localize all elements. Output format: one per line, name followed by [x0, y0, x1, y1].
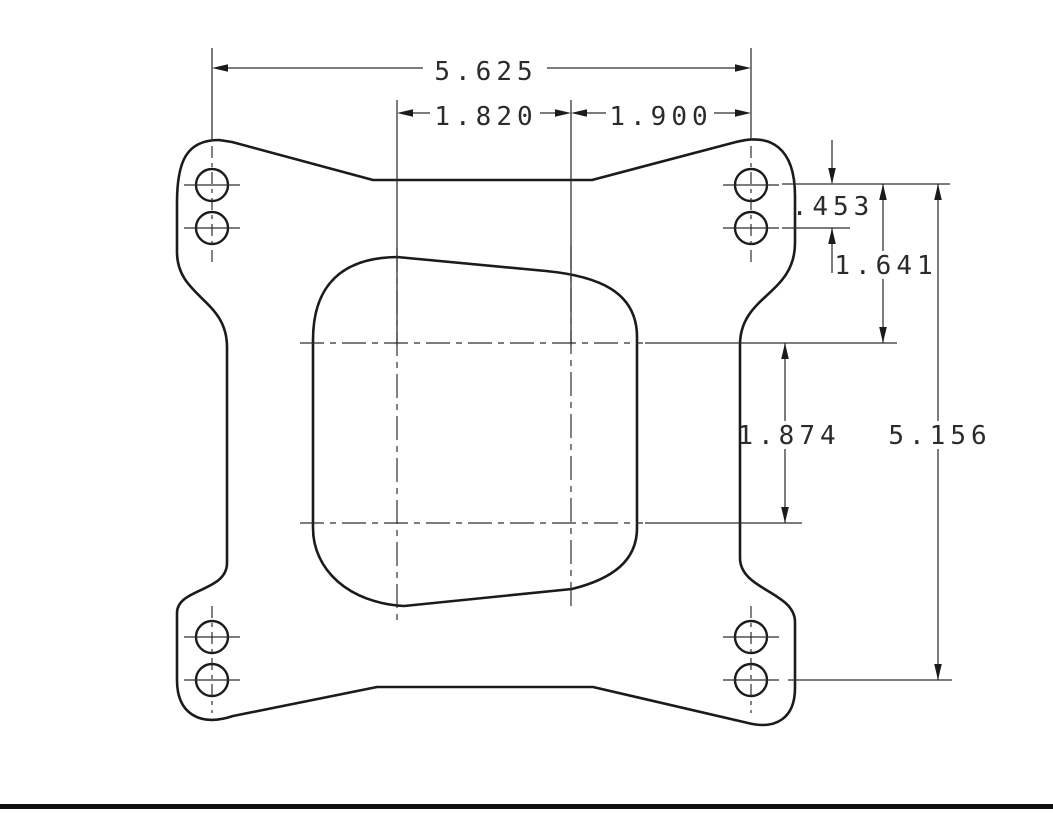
- flange-drawing-canvas: 5.625 1.820 1.900 .453 1.641 1: [0, 0, 1053, 813]
- dimension-right-bore-spacing: 1.900: [571, 102, 751, 132]
- arrowhead-left: [397, 109, 413, 117]
- dimension-value-overall-width: 5.625: [434, 57, 537, 87]
- flange-outline: [177, 139, 795, 724]
- dimension-value-top-row-to-centerline: 1.641: [834, 251, 937, 281]
- arrowhead-up: [879, 184, 887, 200]
- dimension-value-hole-offset: .453: [792, 192, 875, 222]
- dimension-overall-width: 5.625: [212, 57, 751, 87]
- dimension-left-bore-spacing: 1.820: [397, 102, 571, 132]
- arrowhead-left: [212, 64, 228, 72]
- arrowhead-right: [735, 109, 751, 117]
- arrowhead-down: [934, 664, 942, 680]
- plenum-opening-outline: [313, 257, 637, 606]
- dimension-bore-centerline-spacing: 1.874: [737, 343, 840, 523]
- arrowhead-down: [781, 507, 789, 523]
- footer-divider-bar: [0, 804, 1053, 809]
- technical-drawing-page: 5.625 1.820 1.900 .453 1.641 1: [0, 0, 1053, 813]
- arrowhead-up: [828, 228, 836, 244]
- arrowhead-up: [781, 343, 789, 359]
- dimension-value-overall-height: 5.156: [888, 421, 991, 451]
- arrowhead-down: [828, 168, 836, 184]
- bore-centerlines: [300, 246, 643, 623]
- arrowhead-left: [571, 109, 587, 117]
- mounting-holes: [196, 169, 767, 696]
- arrowhead-right: [555, 109, 571, 117]
- dimension-value-bore-centerline-spacing: 1.874: [737, 421, 840, 451]
- arrowhead-up: [934, 184, 942, 200]
- arrowhead-right: [735, 64, 751, 72]
- dimension-value-right-bore-spacing: 1.900: [609, 102, 712, 132]
- hole-centermarks: [184, 146, 779, 713]
- dimension-value-left-bore-spacing: 1.820: [434, 102, 537, 132]
- arrowhead-down: [879, 327, 887, 343]
